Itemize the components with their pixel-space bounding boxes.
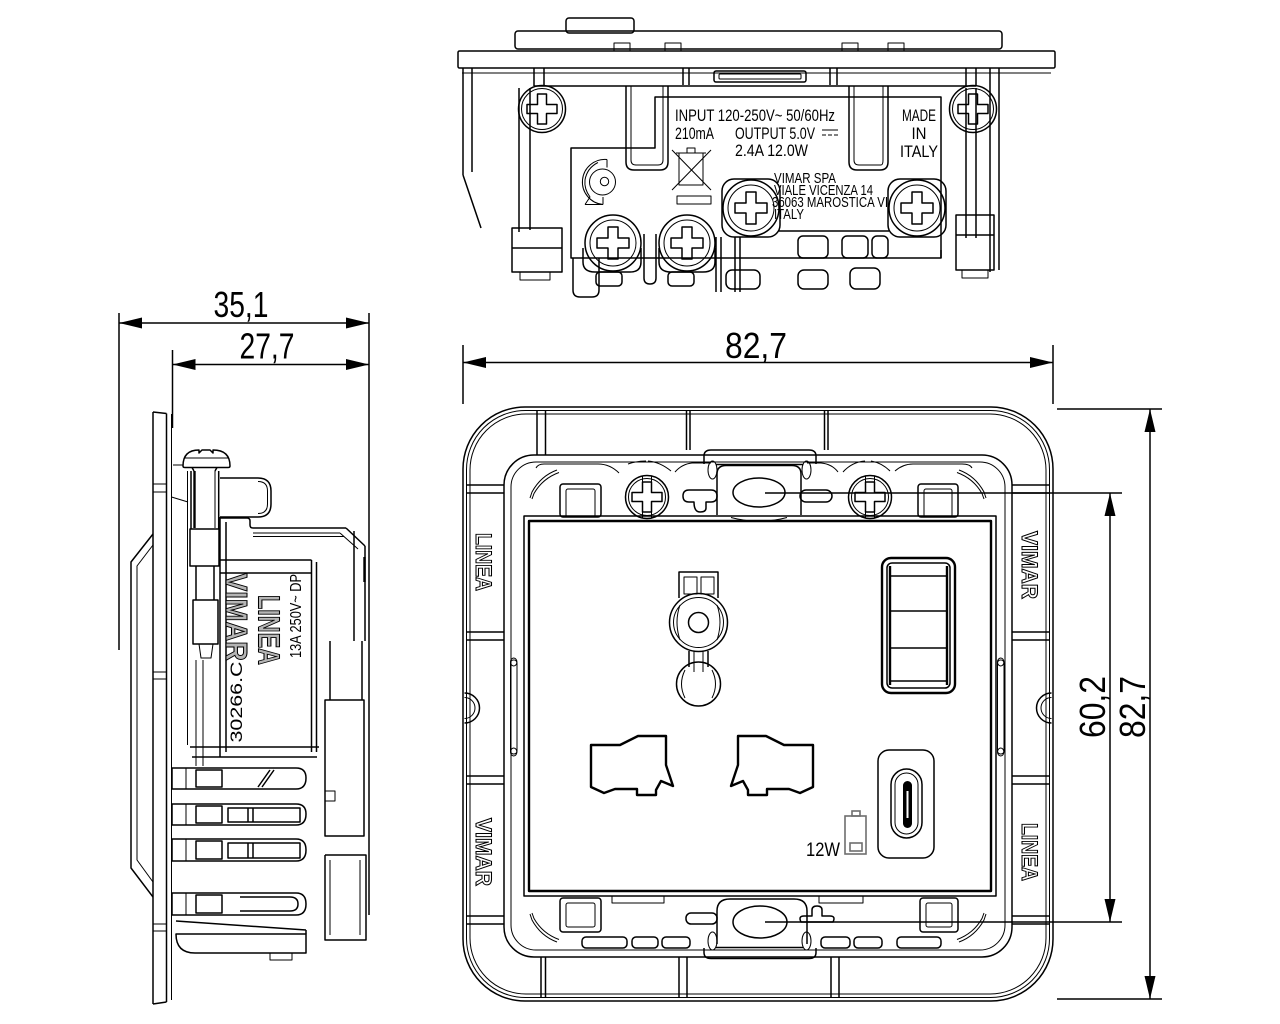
svg-text:82,7: 82,7 — [1112, 676, 1153, 738]
svg-text:210mA: 210mA — [675, 125, 714, 143]
svg-text:60,2: 60,2 — [1072, 676, 1113, 738]
svg-text:INPUT 120-250V~ 50/60Hz: INPUT 120-250V~ 50/60Hz — [675, 107, 835, 125]
svg-text:35,1: 35,1 — [214, 284, 269, 325]
svg-text:2.4A 12.0W: 2.4A 12.0W — [735, 142, 808, 160]
svg-text:VIMAR: VIMAR — [1017, 531, 1042, 599]
svg-text:13A 250V~ DP: 13A 250V~ DP — [288, 574, 305, 658]
svg-text:12W: 12W — [806, 840, 840, 861]
svg-text:VIMAR: VIMAR — [219, 573, 254, 661]
svg-text:IN: IN — [912, 125, 927, 143]
svg-text:OUTPUT 5.0V: OUTPUT 5.0V — [735, 125, 815, 143]
svg-text:82,7: 82,7 — [725, 325, 787, 366]
svg-text:MADE: MADE — [902, 107, 936, 125]
svg-text:27,7: 27,7 — [240, 326, 295, 367]
svg-text:30266.C: 30266.C — [228, 661, 246, 742]
svg-text:VIMAR: VIMAR — [471, 818, 496, 886]
svg-text:LINEA: LINEA — [1017, 823, 1042, 881]
svg-text:LINEA: LINEA — [252, 595, 287, 665]
svg-text:LINEA: LINEA — [471, 533, 496, 591]
svg-text:ITALY: ITALY — [900, 143, 938, 161]
